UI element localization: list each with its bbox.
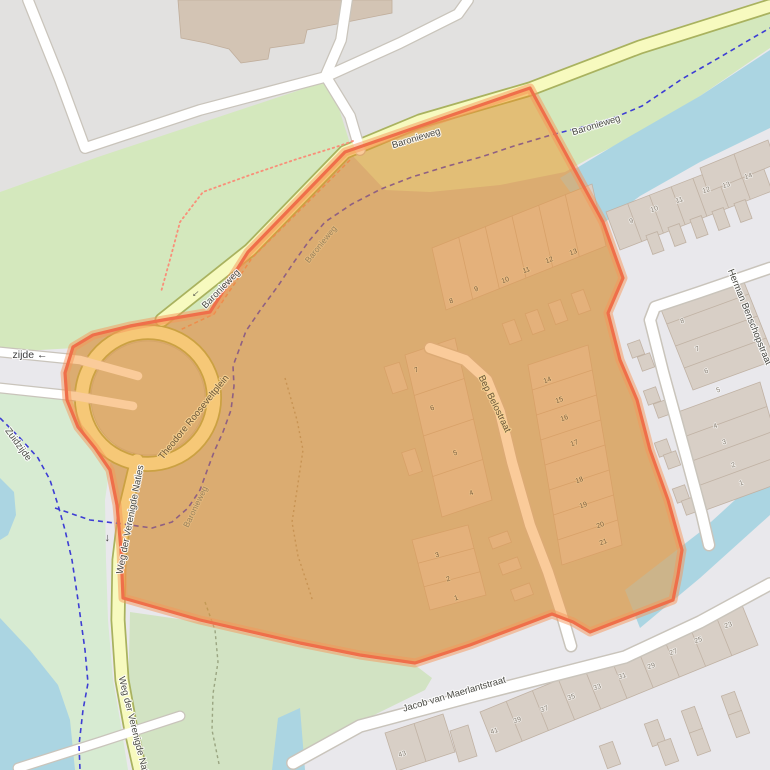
street-label: zijde ← (12, 349, 47, 361)
map-canvas[interactable]: 9101112131487654321434139373533312927252… (0, 0, 770, 770)
map-viewport[interactable]: 9101112131487654321434139373533312927252… (0, 0, 770, 770)
oneway-arrow-icon: ← (100, 533, 112, 544)
